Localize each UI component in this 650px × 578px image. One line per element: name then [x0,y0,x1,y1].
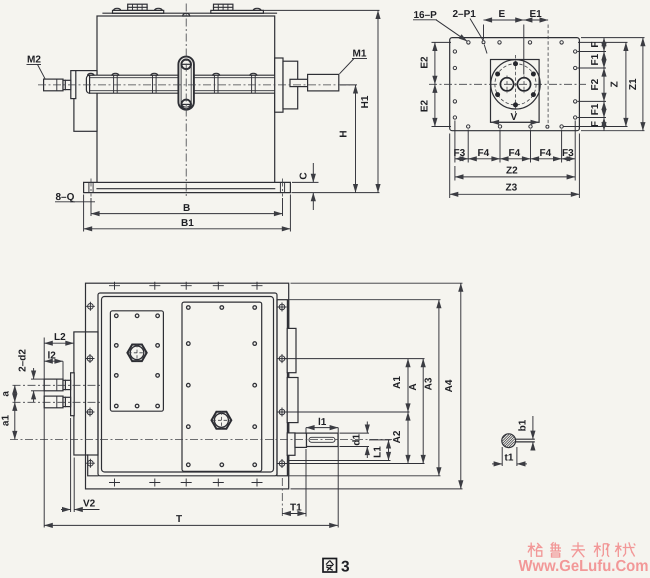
svg-text:Z2: Z2 [506,166,518,177]
svg-text:Z: Z [610,81,621,87]
svg-text:A: A [408,383,419,390]
svg-text:L2: L2 [54,332,66,343]
svg-text:Z1: Z1 [628,78,639,90]
svg-text:V2: V2 [83,499,96,510]
svg-text:d1: d1 [352,434,363,446]
svg-text:A2: A2 [392,430,403,443]
svg-text:F3: F3 [454,148,466,159]
svg-text:E2: E2 [420,99,431,112]
svg-text:B1: B1 [181,218,194,229]
svg-text:Www.GeLufu.Com: Www.GeLufu.Com [519,558,649,575]
svg-text:2–P1: 2–P1 [453,9,477,20]
svg-text:a: a [1,391,12,397]
svg-text:E1: E1 [530,9,543,20]
svg-text:C: C [299,172,310,179]
svg-text:F1: F1 [590,103,601,115]
svg-text:t1: t1 [505,453,514,464]
svg-text:Z3: Z3 [506,183,518,194]
svg-text:F4: F4 [478,148,490,159]
svg-text:A4: A4 [444,379,455,392]
svg-text:T1: T1 [290,503,302,514]
svg-text:T: T [176,514,182,525]
svg-text:F: F [590,41,601,47]
svg-text:F4: F4 [540,148,552,159]
svg-text:a1: a1 [1,415,12,427]
svg-text:l2: l2 [48,351,57,362]
svg-text:F1: F1 [590,53,601,65]
svg-text:A1: A1 [392,376,403,389]
svg-text:F: F [590,121,601,127]
svg-text:b1: b1 [518,419,529,431]
svg-text:V: V [511,112,518,123]
svg-text:l1: l1 [318,417,327,428]
svg-text:H: H [339,130,350,137]
svg-text:E2: E2 [420,56,431,69]
svg-text:A3: A3 [424,377,435,390]
svg-text:H1: H1 [360,95,371,108]
svg-text:F3: F3 [562,148,574,159]
svg-text:B: B [183,203,190,214]
svg-text:L1: L1 [373,446,384,458]
svg-text:F4: F4 [509,148,521,159]
svg-text:E: E [499,9,506,20]
svg-text:M1: M1 [353,49,367,60]
svg-text:2–d2: 2–d2 [18,349,29,372]
svg-text:F2: F2 [590,78,601,90]
svg-text:M2: M2 [27,55,41,66]
svg-text:3: 3 [341,559,350,576]
